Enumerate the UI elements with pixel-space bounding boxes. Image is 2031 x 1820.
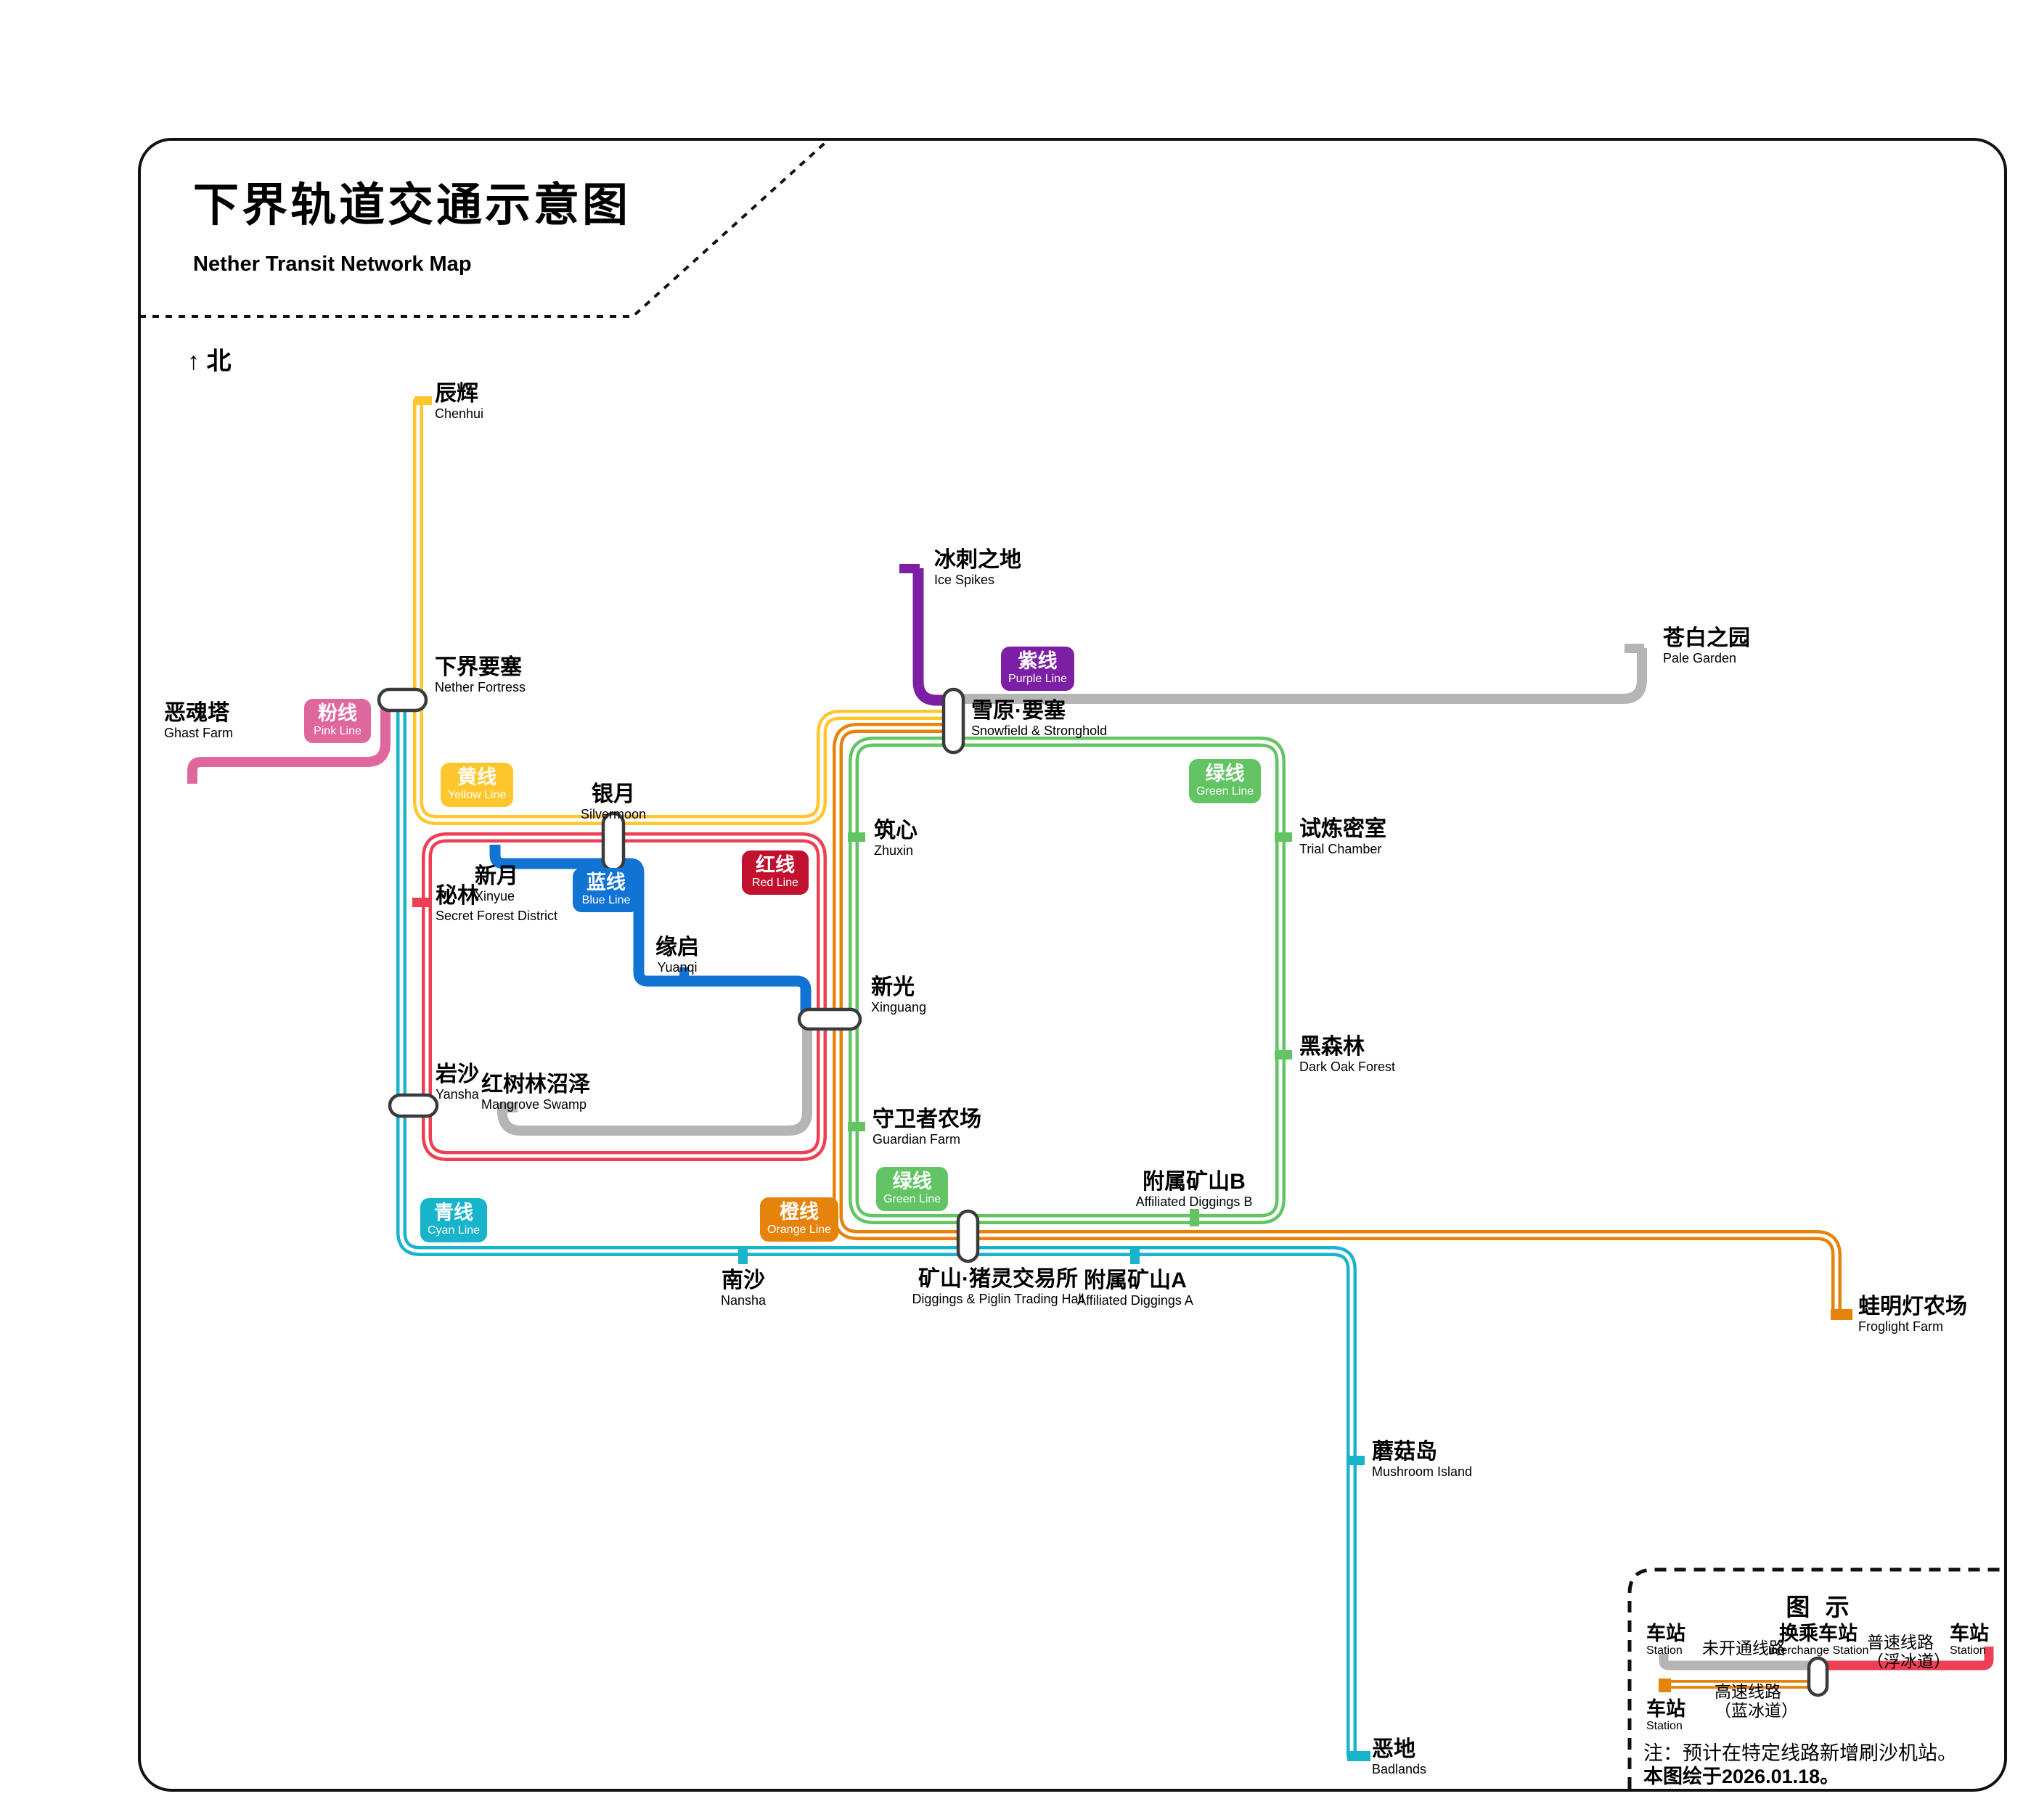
station-label-zhuxin: 筑心 Zhuxin — [874, 819, 918, 858]
yellow-line-inner — [418, 399, 954, 820]
station-label-guardian-farm: 守卫者农场 Guardian Farm — [873, 1107, 981, 1147]
station-zh: 岩沙 — [436, 1062, 479, 1087]
badge-en: Orange Line — [767, 1223, 831, 1237]
badge-en: Pink Line — [314, 725, 361, 738]
station-en: Yuanqi — [657, 960, 697, 975]
interchange-snowfield-stronghold — [944, 689, 963, 753]
interchange-silvermoon — [603, 813, 624, 870]
station-zh: 筑心 — [874, 819, 918, 843]
station-zh: 下界要塞 — [435, 655, 526, 680]
diggings-b-station-tick — [1190, 1209, 1199, 1226]
orange-line-inner — [838, 728, 1836, 1313]
badge-red-line: 红线 Red Line — [742, 850, 809, 895]
transit-map: 下界轨道交通示意图 Nether Transit Network Map ↑ 北… — [0, 0, 2031, 1820]
pale-garden-terminus-tick — [1625, 644, 1644, 653]
station-en: Froglight Farm — [1858, 1319, 1967, 1335]
station-label-diggings-a: 附属矿山A Affiliated Diggings A — [1077, 1268, 1193, 1308]
legend-station-bottom-left: 车站 Station — [1646, 1698, 1685, 1734]
map-border — [139, 139, 2006, 1790]
badge-zh: 红线 — [756, 855, 795, 877]
legend-station-right: 车站 Station — [1950, 1623, 1989, 1658]
station-zh: 新光 — [871, 975, 926, 1000]
legend-station-en: Station — [1950, 1644, 1989, 1657]
station-zh: 附属矿山A — [1084, 1268, 1187, 1293]
legend-interchange-pill — [1809, 1658, 1827, 1695]
page-subtitle: Nether Transit Network Map — [193, 253, 472, 276]
station-label-nansha: 南沙 Nansha — [721, 1268, 766, 1308]
chenhui-terminus-tick — [414, 396, 432, 405]
station-en: Chenhui — [435, 406, 483, 422]
trial-chamber-station-tick — [1275, 832, 1292, 842]
station-label-silvermoon: 银月 Silvermoon — [581, 782, 646, 821]
station-en: Nansha — [721, 1293, 766, 1308]
station-en: Ice Spikes — [934, 573, 1021, 588]
badge-en: Blue Line — [582, 894, 631, 907]
mushroom-station-tick — [1347, 1456, 1365, 1465]
station-en: Ghast Farm — [164, 726, 233, 741]
legend-date-note: 本图绘于2026.01.18。 — [1643, 1760, 1839, 1789]
froglight-terminus-tick — [1831, 1309, 1852, 1320]
station-label-ice-spikes: 冰刺之地 Ice Spikes — [934, 548, 1021, 587]
station-label-mangrove: 红树林沼泽 Mangrove Swamp — [481, 1073, 590, 1112]
badge-zh: 橙线 — [780, 1202, 819, 1223]
station-en: Mushroom Island — [1372, 1464, 1472, 1480]
station-en: Dark Oak Forest — [1299, 1059, 1395, 1075]
station-zh: 附属矿山B — [1143, 1170, 1246, 1194]
station-zh: 矿山·猪灵交易所 — [918, 1267, 1078, 1292]
badge-zh: 紫线 — [1018, 651, 1057, 673]
station-en: Affiliated Diggings B — [1136, 1194, 1253, 1210]
station-label-trial-chamber: 试炼密室 Trial Chamber — [1299, 817, 1386, 856]
interchange-yansha — [390, 1095, 437, 1116]
legend-station-zh: 车站 — [1950, 1623, 1989, 1644]
station-en: Nether Fortress — [435, 680, 526, 695]
guardian-farm-station-tick — [848, 1122, 865, 1131]
station-en: Secret Forest District — [436, 909, 557, 924]
station-zh: 雪原·要塞 — [971, 699, 1107, 724]
station-en: Silvermoon — [581, 807, 646, 822]
north-indicator: ↑ 北 — [187, 341, 231, 377]
badge-zh: 绿线 — [893, 1171, 932, 1193]
badge-zh: 青线 — [434, 1202, 473, 1224]
station-zh: 缘启 — [655, 935, 699, 960]
station-en: Zhuxin — [874, 843, 918, 858]
legend-station-en: Station — [1646, 1720, 1685, 1733]
station-en: Yansha — [436, 1087, 479, 1102]
station-zh: 冰刺之地 — [934, 548, 1021, 573]
badge-zh: 粉线 — [318, 703, 357, 725]
secret-forest-station-tick — [412, 898, 431, 907]
badge-en: Red Line — [752, 877, 798, 890]
badge-green-line-north: 绿线 Green Line — [1189, 759, 1261, 803]
badge-zh: 绿线 — [1206, 763, 1245, 785]
legend-station-en: Station — [1646, 1644, 1685, 1657]
interchange-piglin-trading-hall — [958, 1211, 978, 1261]
station-zh: 辰辉 — [435, 382, 483, 406]
station-en: Affiliated Diggings A — [1077, 1293, 1193, 1308]
station-label-chenhui: 辰辉 Chenhui — [435, 382, 483, 421]
badge-en: Purple Line — [1008, 673, 1067, 686]
badge-orange-line: 橙线 Orange Line — [760, 1197, 838, 1242]
legend-high-line2: （蓝冰道） — [1715, 1701, 1798, 1720]
station-en: Diggings & Piglin Trading Hall — [912, 1292, 1084, 1307]
station-zh: 南沙 — [722, 1268, 765, 1293]
legend-title: 图 示 — [1786, 1588, 1853, 1623]
interchange-nether-fortress — [379, 689, 426, 710]
diggings-a-station-tick — [1130, 1248, 1140, 1264]
station-en: Trial Chamber — [1299, 842, 1386, 857]
badge-zh: 黄线 — [457, 767, 496, 789]
legend-high-speed-label: 高速线路 （蓝冰道） — [1715, 1682, 1798, 1721]
legend-normal-speed-label: 普速线路 （浮冰道） — [1867, 1633, 1950, 1671]
station-zh: 蛙明灯农场 — [1858, 1295, 1967, 1319]
station-label-nether-fortress: 下界要塞 Nether Fortress — [435, 655, 526, 694]
badge-en: Green Line — [883, 1193, 941, 1206]
badge-en: Yellow Line — [448, 789, 506, 802]
badge-green-line-south: 绿线 Green Line — [876, 1167, 948, 1211]
station-label-mushroom-island: 蘑菇岛 Mushroom Island — [1372, 1440, 1472, 1479]
station-label-pale-garden: 苍白之园 Pale Garden — [1663, 626, 1750, 665]
interchange-xinguang — [799, 1009, 860, 1029]
station-en: Snowfield & Stronghold — [971, 724, 1107, 739]
badge-purple-line: 紫线 Purple Line — [1001, 647, 1074, 691]
station-label-badlands: 恶地 Badlands — [1372, 1737, 1426, 1776]
station-en: Badlands — [1372, 1762, 1426, 1777]
ice-spikes-terminus-tick — [899, 564, 920, 573]
station-label-xinguang: 新光 Xinguang — [871, 975, 926, 1014]
station-label-piglin-trading-hall: 矿山·猪灵交易所 Diggings & Piglin Trading Hall — [912, 1267, 1084, 1306]
station-label-diggings-b: 附属矿山B Affiliated Diggings B — [1136, 1170, 1253, 1209]
station-label-dark-oak: 黑森林 Dark Oak Forest — [1299, 1035, 1395, 1074]
dark-oak-station-tick — [1275, 1050, 1292, 1059]
legend-terminus-square — [1659, 1678, 1671, 1692]
legend-interchange-zh: 换乘车站 — [1779, 1623, 1858, 1644]
station-zh: 守卫者农场 — [873, 1107, 981, 1132]
station-zh: 苍白之园 — [1663, 626, 1750, 651]
badge-yellow-line: 黄线 Yellow Line — [441, 763, 513, 807]
legend-station-left: 车站 Station — [1646, 1623, 1685, 1658]
legend-normal-line2: （浮冰道） — [1867, 1652, 1950, 1671]
badlands-terminus-tick — [1347, 1751, 1370, 1761]
purple-line-path — [918, 568, 953, 700]
legend-normal-line1: 普速线路 — [1867, 1633, 1950, 1652]
station-en: Xinguang — [871, 1000, 926, 1015]
zhuxin-station-tick — [848, 832, 865, 842]
legend-station-zh: 车站 — [1646, 1623, 1685, 1644]
station-label-yuanqi: 缘启 Yuanqi — [655, 935, 699, 975]
badge-cyan-line: 青线 Cyan Line — [420, 1198, 487, 1242]
badge-en: Green Line — [1196, 785, 1254, 798]
station-zh: 试炼密室 — [1299, 817, 1386, 842]
legend-high-line1: 高速线路 — [1715, 1682, 1798, 1701]
station-zh: 红树林沼泽 — [481, 1073, 590, 1097]
station-en: Guardian Farm — [873, 1132, 981, 1147]
badge-en: Cyan Line — [428, 1224, 480, 1237]
legend-interchange-en: Interchange Station — [1768, 1644, 1869, 1657]
legend-interchange-label: 换乘车站 Interchange Station — [1768, 1623, 1869, 1658]
station-zh: 恶魂塔 — [164, 701, 233, 726]
legend-station-zh: 车站 — [1646, 1698, 1685, 1720]
badge-pink-line: 粉线 Pink Line — [304, 699, 371, 743]
station-label-yansha: 岩沙 Yansha — [436, 1062, 479, 1102]
station-label-snowfield-stronghold: 雪原·要塞 Snowfield & Stronghold — [971, 699, 1107, 738]
station-zh: 秘林 — [436, 884, 557, 909]
page-title: 下界轨道交通示意图 — [193, 168, 631, 234]
station-zh: 黑森林 — [1299, 1035, 1395, 1059]
nansha-station-tick — [738, 1248, 748, 1264]
station-label-secret-forest: 秘林 Secret Forest District — [436, 884, 557, 923]
yellow-line-path — [414, 396, 954, 820]
station-en: Pale Garden — [1663, 651, 1750, 666]
station-zh: 恶地 — [1372, 1737, 1426, 1762]
station-zh: 银月 — [592, 782, 635, 807]
station-label-froglight-farm: 蛙明灯农场 Froglight Farm — [1858, 1295, 1967, 1334]
station-zh: 蘑菇岛 — [1372, 1440, 1472, 1464]
station-label-ghast-farm: 恶魂塔 Ghast Farm — [164, 701, 233, 740]
station-en: Mangrove Swamp — [481, 1097, 590, 1112]
badge-zh: 蓝线 — [587, 872, 626, 894]
badge-blue-line: 蓝线 Blue Line — [573, 868, 639, 912]
